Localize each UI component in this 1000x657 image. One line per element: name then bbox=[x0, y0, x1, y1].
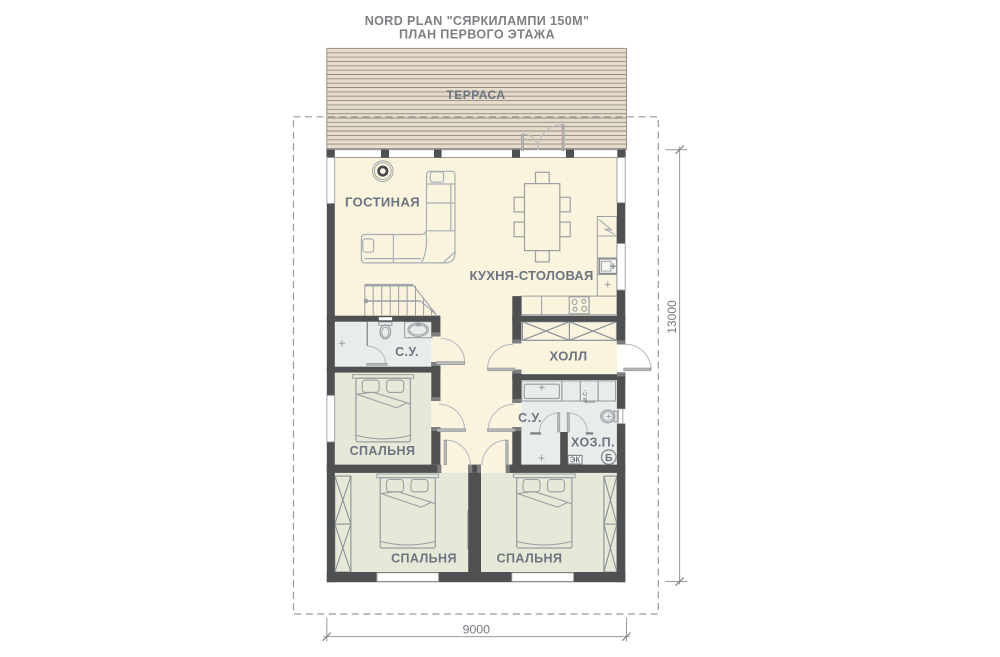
svg-text:КУХНЯ-СТОЛОВАЯ: КУХНЯ-СТОЛОВАЯ bbox=[469, 268, 593, 283]
svg-text:СПАЛЬНЯ: СПАЛЬНЯ bbox=[497, 552, 563, 566]
svg-text:ЭК: ЭК bbox=[570, 455, 581, 464]
svg-text:NORD PLAN "СЯРКИЛАМПИ 150М": NORD PLAN "СЯРКИЛАМПИ 150М" bbox=[365, 14, 590, 28]
svg-text:СПАЛЬНЯ: СПАЛЬНЯ bbox=[350, 444, 416, 458]
svg-text:СПАЛЬНЯ: СПАЛЬНЯ bbox=[391, 552, 457, 566]
svg-text:13000: 13000 bbox=[665, 300, 679, 334]
svg-text:.М.С↑: .М.С↑ bbox=[583, 389, 589, 404]
svg-text:ХОЛЛ: ХОЛЛ bbox=[550, 349, 588, 364]
svg-text:ТЕРРАСА: ТЕРРАСА bbox=[446, 88, 505, 102]
svg-text:С.У.: С.У. bbox=[395, 345, 419, 359]
svg-text:Б: Б bbox=[605, 452, 613, 464]
svg-text:9000: 9000 bbox=[463, 623, 491, 637]
svg-text:ГОСТИНАЯ: ГОСТИНАЯ bbox=[345, 195, 420, 210]
svg-text:С.У.: С.У. bbox=[518, 411, 542, 425]
svg-text:ХОЗ.П.: ХОЗ.П. bbox=[571, 436, 615, 450]
svg-text:ПЛАН ПЕРВОГО ЭТАЖА: ПЛАН ПЕРВОГО ЭТАЖА bbox=[399, 28, 555, 42]
